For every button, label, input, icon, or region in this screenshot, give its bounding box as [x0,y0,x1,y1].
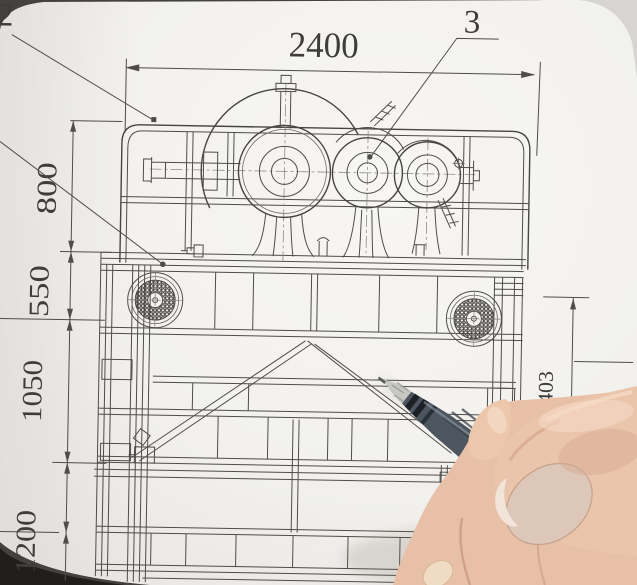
callout-3-label: 3 [464,4,481,40]
right-flywheel [446,291,502,347]
dim-left-550-label: 550 [24,265,56,318]
scene-svg: 2400 800 550 1050 1200 1403 2 3 [0,0,637,585]
dim-top-label: 2400 [288,24,359,65]
dim-left-800-label: 800 [32,162,64,215]
dim-left-1200-label: 1200 [10,510,42,575]
dim-left-1050-label: 1050 [17,360,49,423]
photo-of-engineering-drawing: 2400 800 550 1050 1200 1403 2 3 [0,0,637,585]
callout-2-label: 2 [0,0,14,34]
callout-2-leader-dot [151,117,156,122]
left-flywheel [127,272,183,328]
